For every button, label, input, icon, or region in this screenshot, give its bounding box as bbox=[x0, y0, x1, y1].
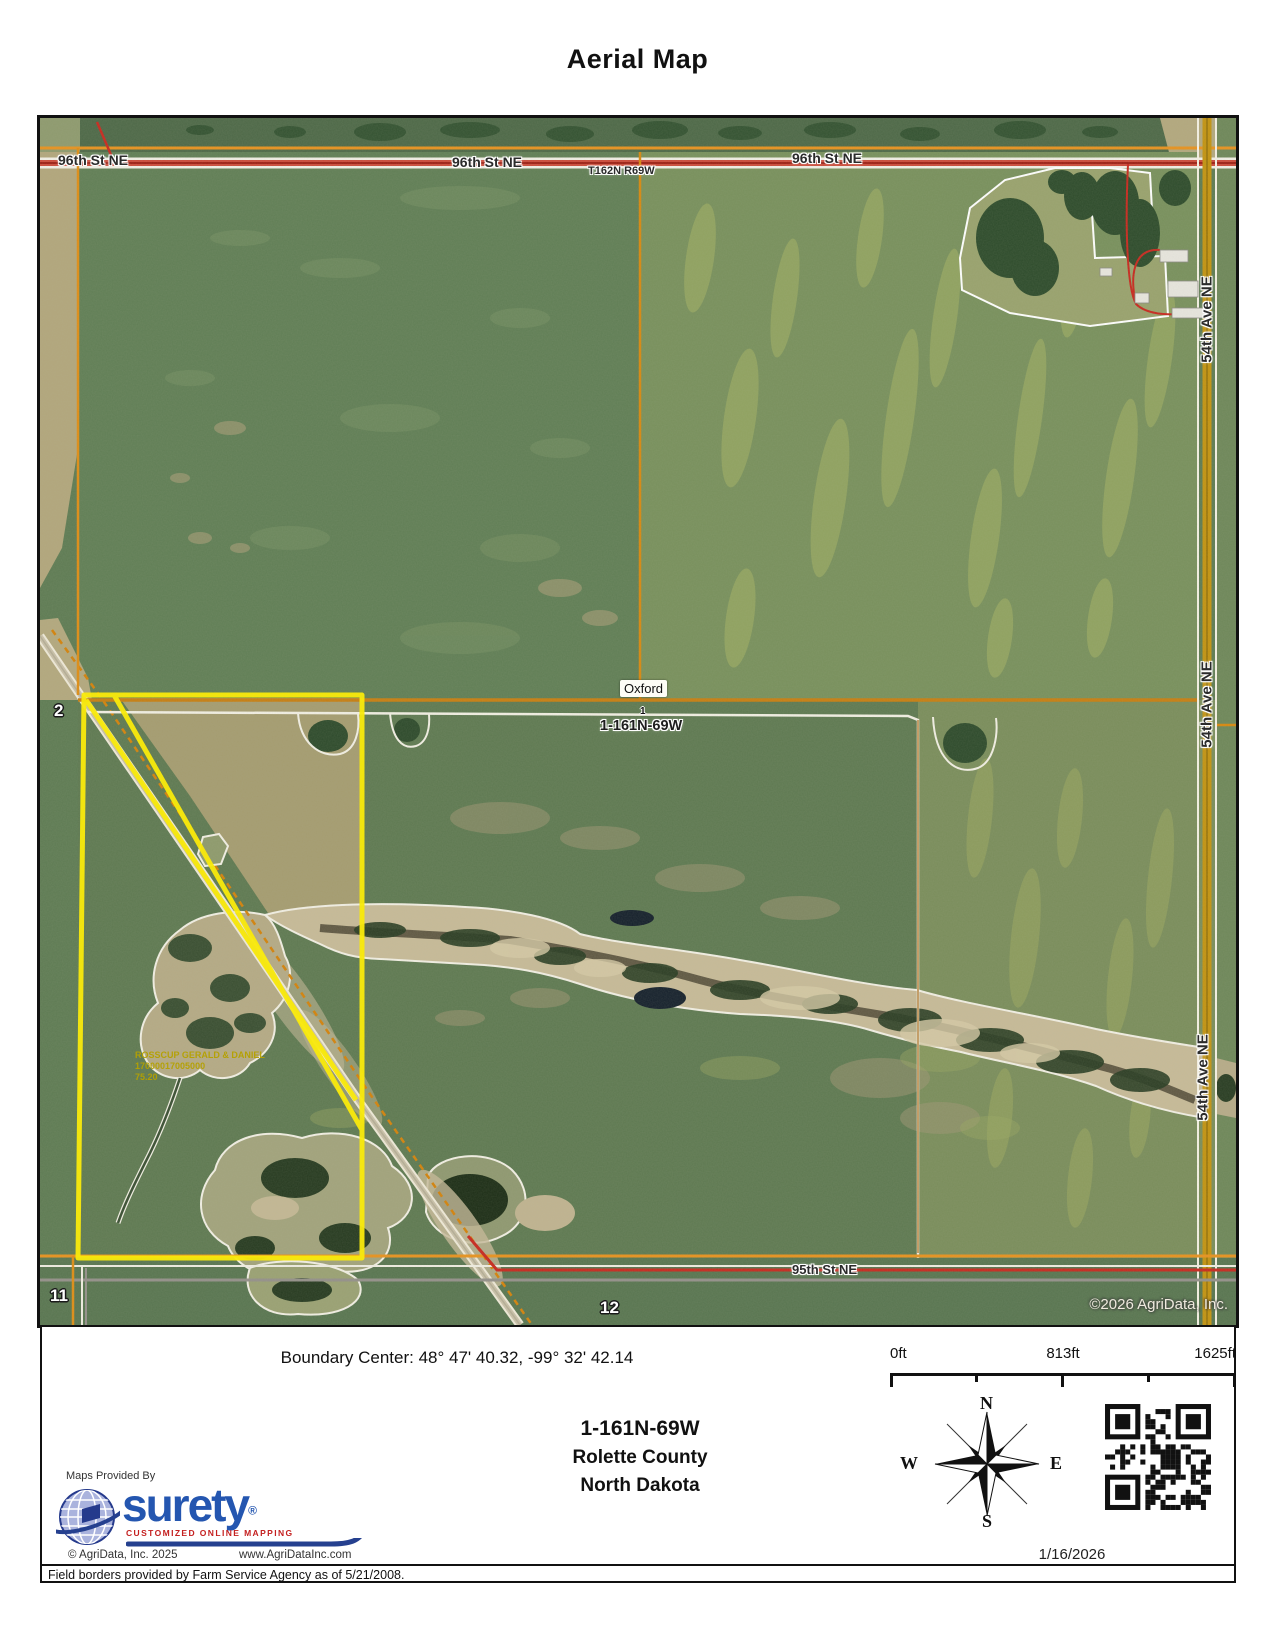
avenue-label-54th-1: 54th Ave NE bbox=[1199, 255, 1216, 385]
section-number-2: 2 bbox=[54, 701, 63, 721]
page-title: Aerial Map bbox=[0, 44, 1275, 75]
footer-copyright: © AgriData, Inc. 2025 bbox=[68, 1549, 177, 1561]
section-number-12: 12 bbox=[600, 1298, 619, 1318]
map-copyright: ©2026 AgriData, Inc. bbox=[1089, 1296, 1228, 1313]
place-label-oxford: Oxford bbox=[620, 680, 667, 697]
compass-east-label: E bbox=[1050, 1453, 1062, 1474]
parcel-number: 17000017005000 bbox=[135, 1061, 265, 1072]
scale-middle-label: 813ft bbox=[890, 1345, 1236, 1362]
surety-logo: surety® CUSTOMIZED ONLINE MAPPING bbox=[56, 1485, 366, 1557]
street-label-96th-2: 96th St NE bbox=[452, 154, 522, 170]
avenue-label-54th-2: 54th Ave NE bbox=[1199, 640, 1216, 770]
compass-south-label: S bbox=[982, 1511, 992, 1532]
township-section-label: 1-161N-69W bbox=[600, 718, 682, 734]
aerial-map-page: Aerial Map bbox=[0, 0, 1275, 1650]
aerial-map: 96th St NE 96th St NE 96th St NE T162N R… bbox=[37, 115, 1239, 1328]
parcel-acres: 75.20 bbox=[135, 1072, 265, 1083]
scale-bar-line bbox=[890, 1367, 1236, 1383]
section-number-1: 1 bbox=[640, 706, 646, 717]
registered-mark: ® bbox=[248, 1504, 257, 1518]
map-footer: Boundary Center: 48° 47' 40.32, -99° 32'… bbox=[40, 1325, 1236, 1583]
boundary-center-text: Boundary Center: 48° 47' 40.32, -99° 32'… bbox=[42, 1348, 872, 1368]
compass-west-label: W bbox=[900, 1453, 918, 1474]
township-range-label: T162N R69W bbox=[588, 165, 655, 177]
globe-icon bbox=[56, 1485, 120, 1549]
footer-divider bbox=[42, 1564, 1234, 1566]
brand-tagline: CUSTOMIZED ONLINE MAPPING bbox=[126, 1528, 366, 1538]
location-plss: 1-161N-69W bbox=[42, 1417, 1238, 1441]
parcel-owner: ROSSCUP GERALD & DANIEL bbox=[135, 1050, 265, 1061]
street-label-95th: 95th St NE bbox=[792, 1262, 857, 1277]
scale-bar: 0ft 813ft 1625ft bbox=[890, 1345, 1236, 1383]
scale-end-label: 1625ft bbox=[1194, 1345, 1236, 1362]
brand-name: surety bbox=[122, 1479, 248, 1531]
avenue-label-54th-3: 54th Ave NE bbox=[1195, 1013, 1212, 1143]
compass-north-label: N bbox=[980, 1393, 993, 1414]
street-label-96th-3: 96th St NE bbox=[792, 150, 862, 166]
section-number-11: 11 bbox=[50, 1286, 68, 1306]
qr-code bbox=[1103, 1402, 1217, 1516]
footer-website: www.AgriDataInc.com bbox=[239, 1549, 351, 1561]
compass-rose-icon bbox=[922, 1399, 1052, 1529]
parcel-label: ROSSCUP GERALD & DANIEL 17000017005000 7… bbox=[135, 1050, 265, 1083]
street-label-96th-1: 96th St NE bbox=[58, 152, 128, 168]
fsa-disclaimer: Field borders provided by Farm Service A… bbox=[48, 1568, 404, 1582]
map-date: 1/16/2026 bbox=[972, 1546, 1172, 1563]
